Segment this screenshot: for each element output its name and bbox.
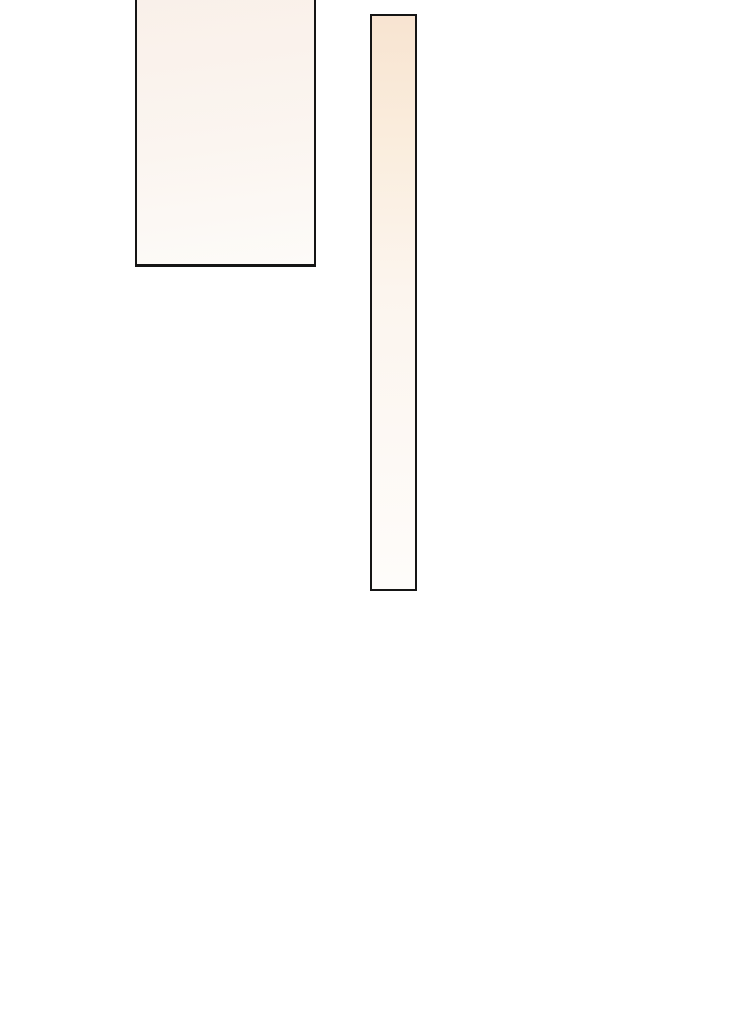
comic-page-background [0,0,756,1014]
comic-panel-large [135,0,316,267]
comic-panel-tall-thin [370,14,417,591]
